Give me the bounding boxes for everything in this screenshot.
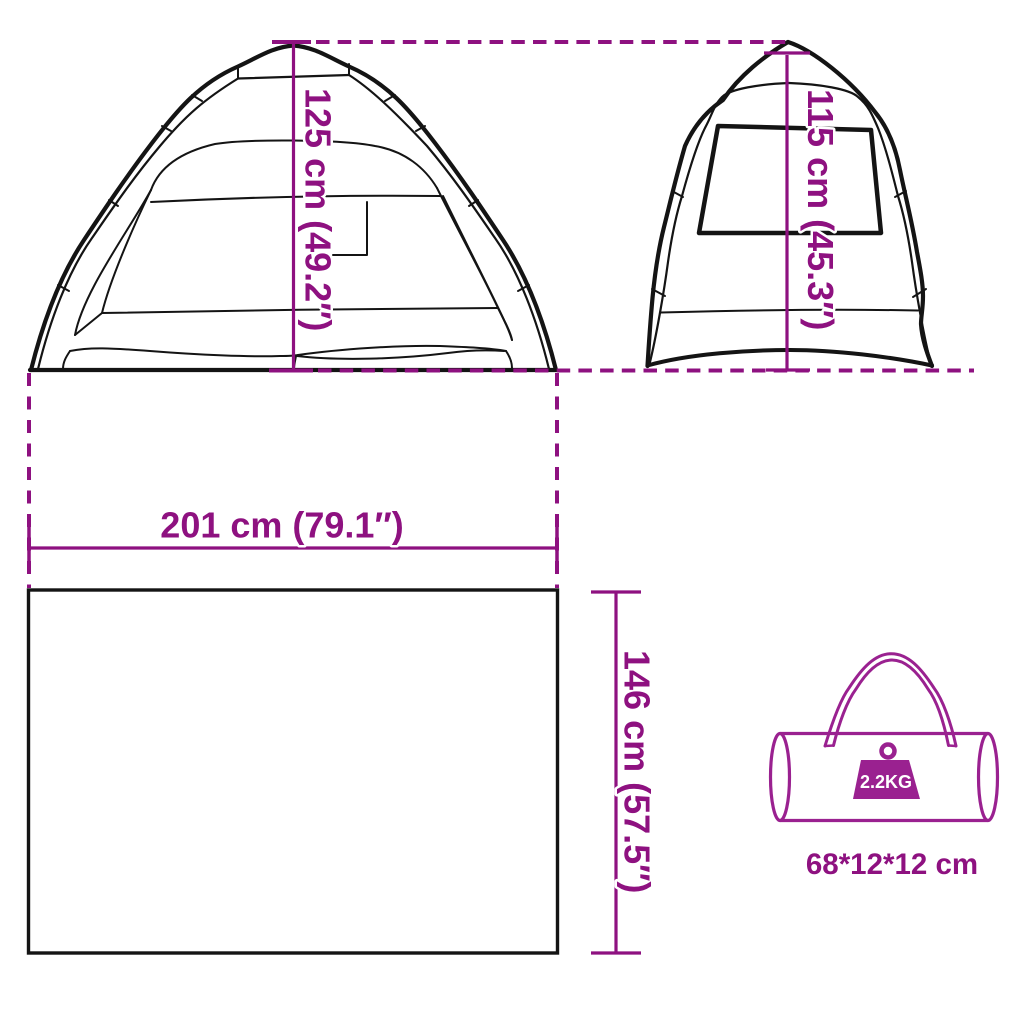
svg-text:125 cm (49.2″): 125 cm (49.2″) bbox=[298, 88, 339, 331]
svg-text:146 cm (57.5″): 146 cm (57.5″) bbox=[617, 650, 658, 893]
svg-text:68*12*12 cm: 68*12*12 cm bbox=[806, 848, 978, 881]
svg-text:115 cm (45.3″): 115 cm (45.3″) bbox=[800, 89, 841, 330]
svg-text:201 cm (79.1″): 201 cm (79.1″) bbox=[160, 505, 403, 546]
svg-text:2.2KG: 2.2KG bbox=[860, 772, 912, 792]
